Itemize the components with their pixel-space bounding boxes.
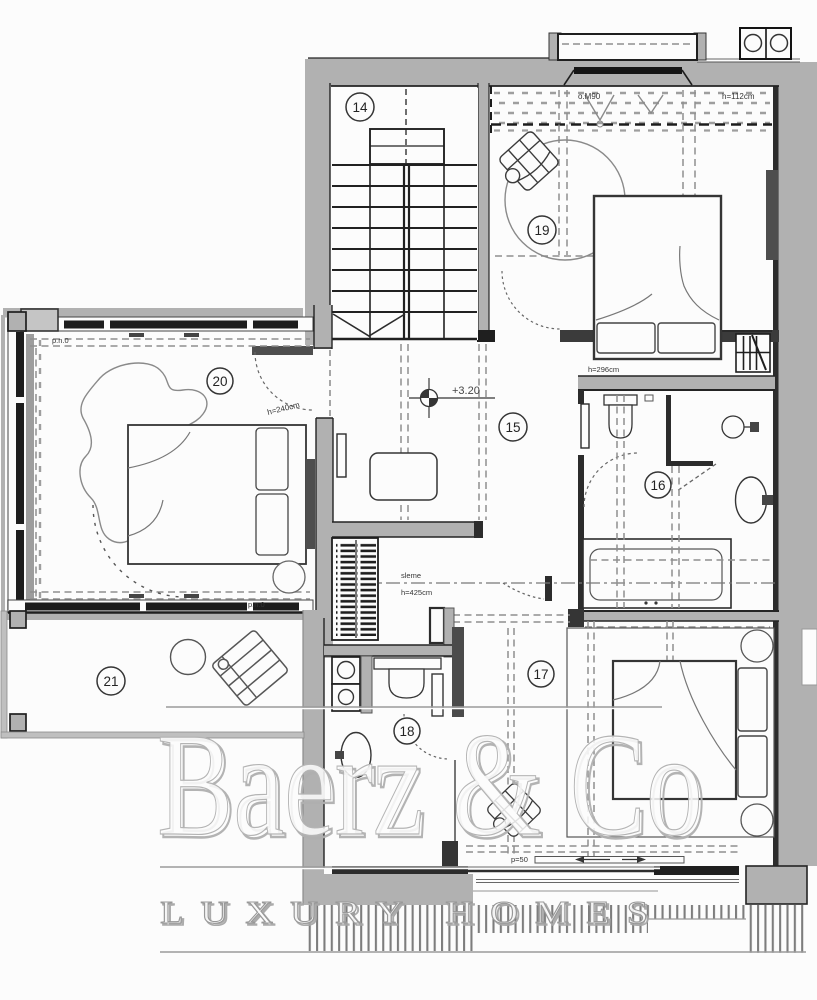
svg-text:21: 21 [103,674,118,689]
svg-text:Baerz & Co: Baerz & Co [157,703,703,867]
svg-text:p.n.0: p.n.0 [248,600,265,609]
svg-text:20: 20 [212,374,227,389]
svg-text:p.n.0: p.n.0 [52,336,69,345]
svg-text:17: 17 [533,667,548,682]
svg-text:14: 14 [352,100,368,115]
svg-text:15: 15 [505,420,520,435]
svg-text:+3.20: +3.20 [452,385,480,397]
svg-text:o.M90: o.M90 [578,92,601,101]
svg-text:sleme: sleme [401,571,421,580]
svg-text:h=296cm: h=296cm [588,365,619,374]
svg-text:19: 19 [534,223,549,238]
svg-text:h=112cm: h=112cm [722,92,755,101]
svg-text:16: 16 [650,478,665,493]
svg-text:h=425cm: h=425cm [401,588,432,597]
svg-text:LUXURY HOMES: LUXURY HOMES [160,894,665,930]
